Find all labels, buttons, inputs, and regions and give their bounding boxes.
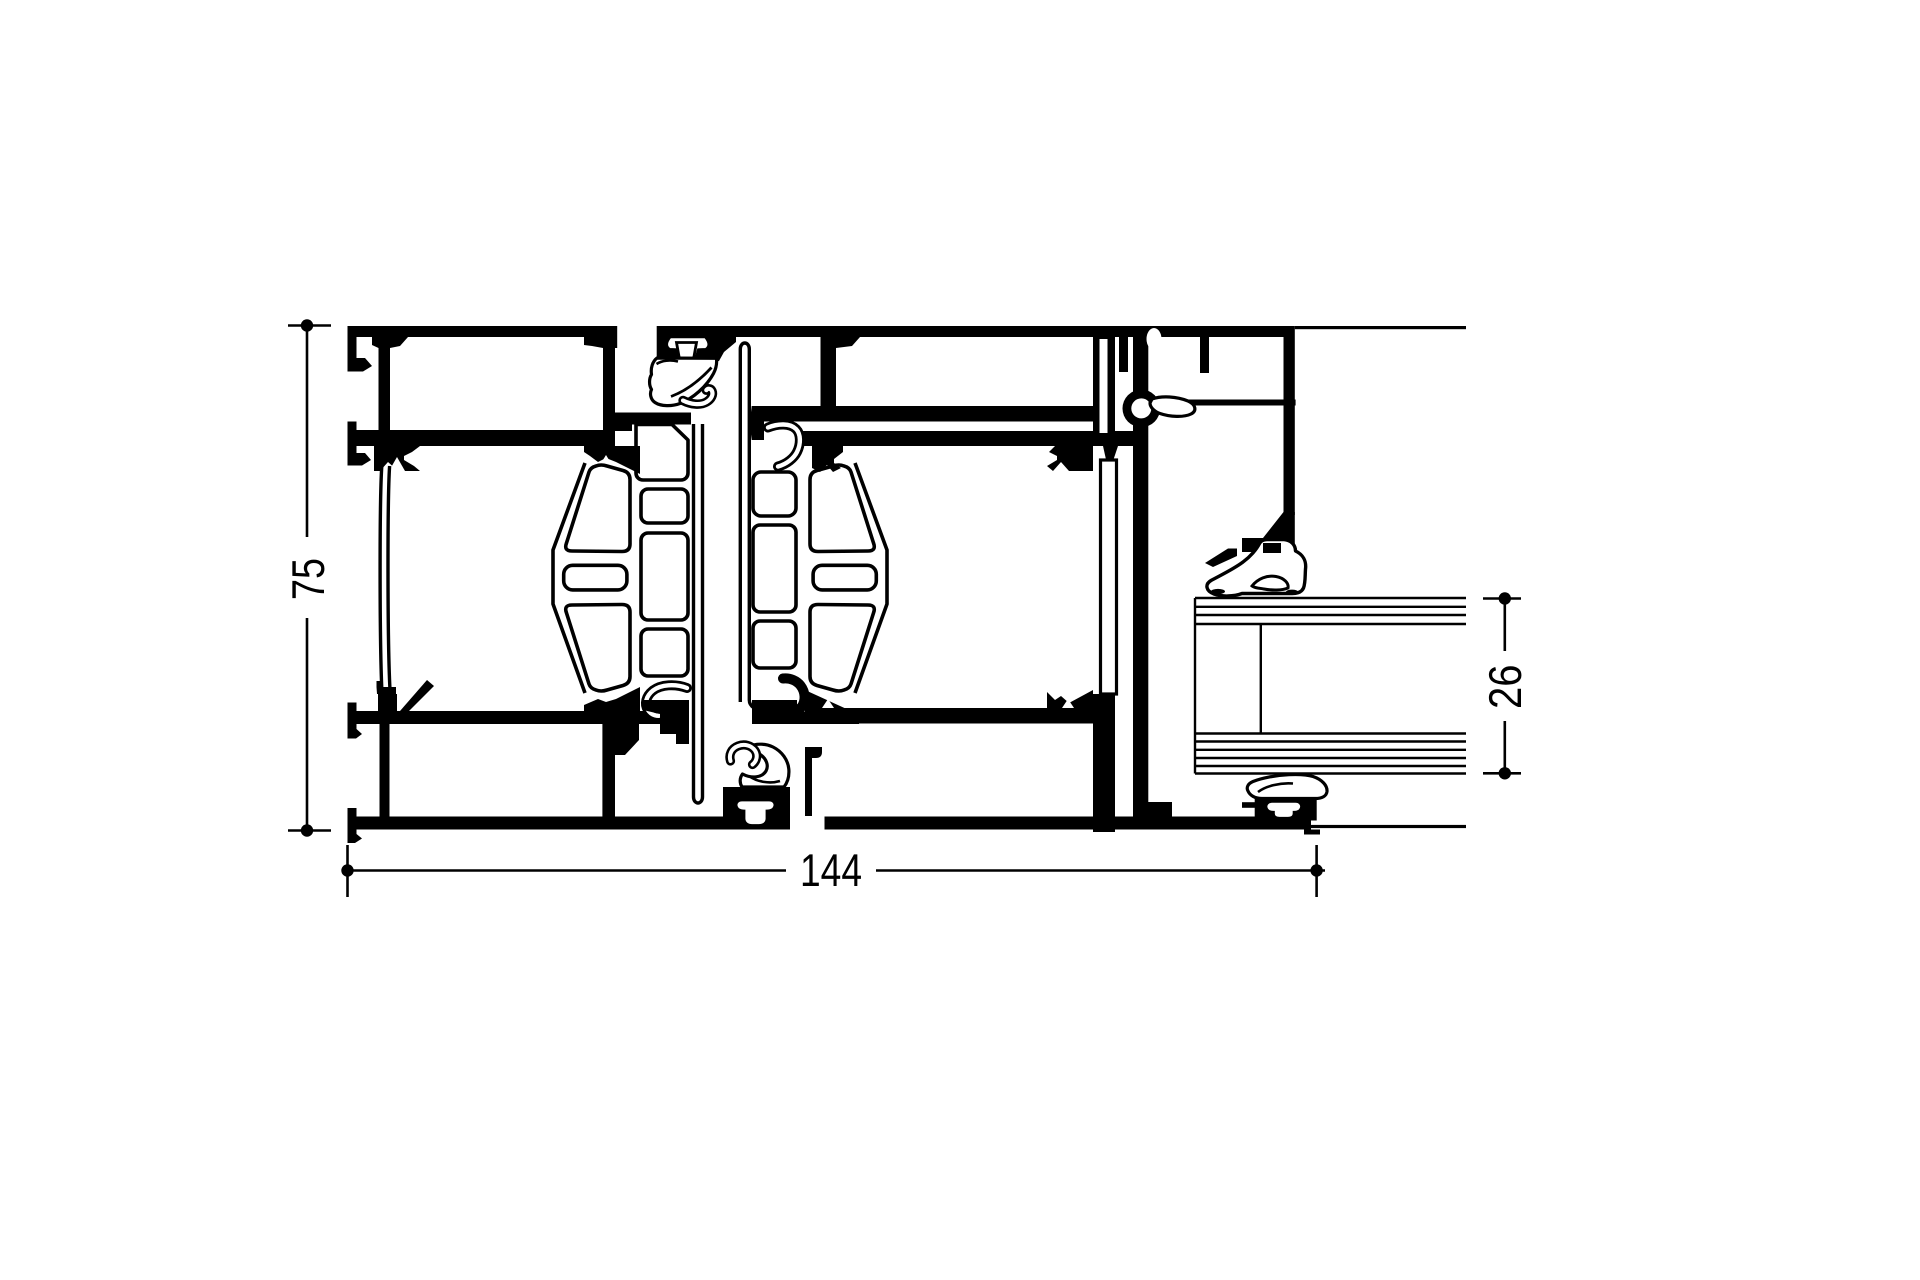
svg-text:144: 144 xyxy=(800,844,862,896)
svg-text:26: 26 xyxy=(1479,665,1531,710)
svg-text:75: 75 xyxy=(282,558,334,600)
